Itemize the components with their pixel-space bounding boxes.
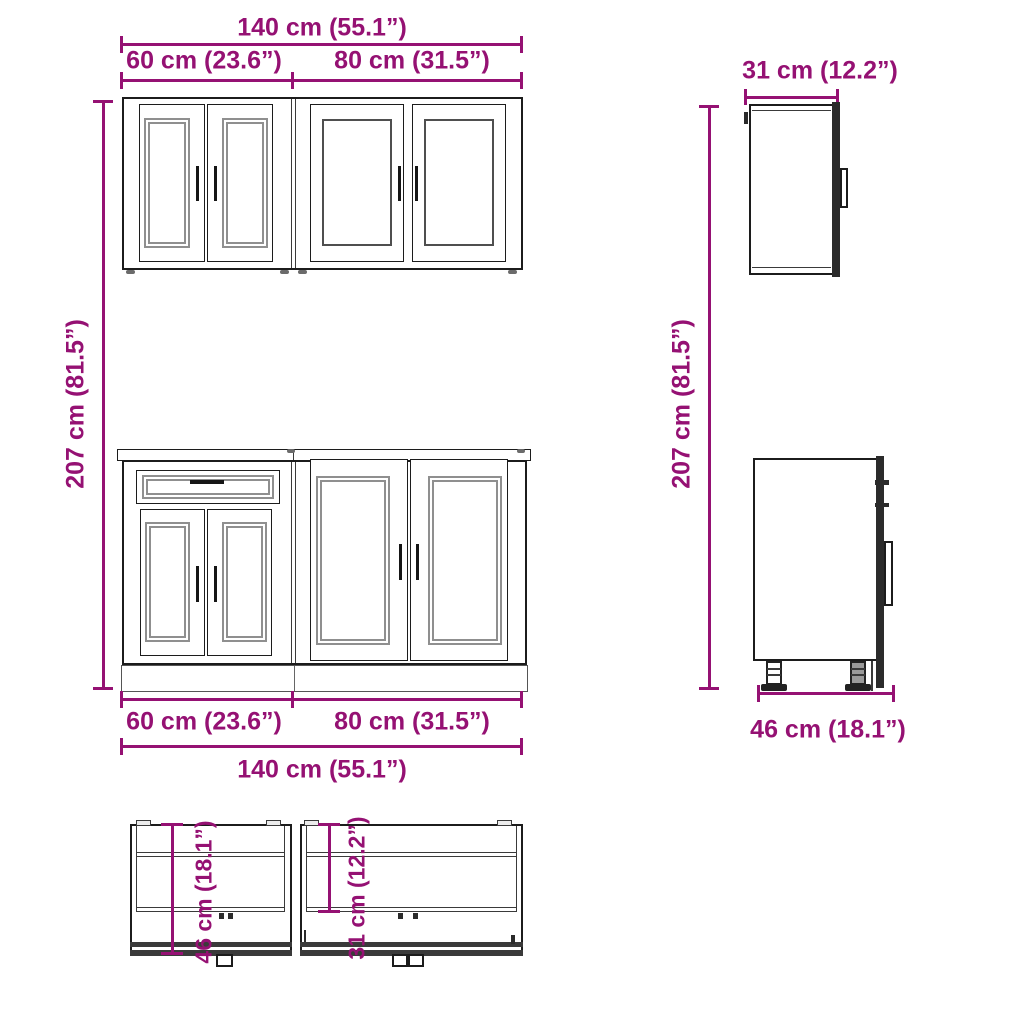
countertop-joint-mark xyxy=(517,449,525,453)
technical-drawing-canvas: 140 cm (55.1”) 60 cm (23.6”) 80 cm (31.5… xyxy=(0,0,1024,1024)
door-panel xyxy=(144,118,190,248)
dim-label-height-right: 207 cm (81.5”) xyxy=(670,319,695,489)
leg-ridge xyxy=(851,674,865,676)
dim-line-split-width-bottom xyxy=(122,698,523,701)
hinge-mark xyxy=(398,913,403,919)
door-edge-profile xyxy=(832,102,840,277)
dim-line-split-width-top xyxy=(122,79,523,82)
hinge-mark xyxy=(219,913,224,919)
side-line xyxy=(136,826,137,911)
dim-cap xyxy=(161,823,183,826)
drawer-joint-mark xyxy=(875,503,889,507)
dim-line-height-left xyxy=(102,101,105,690)
door-panel xyxy=(424,119,494,246)
foot-mark xyxy=(280,270,289,274)
corner-tab xyxy=(266,820,281,826)
cabinet-leg xyxy=(850,661,866,685)
foot-mark xyxy=(298,270,307,274)
dim-label-right-width-top: 80 cm (31.5”) xyxy=(334,49,490,74)
dim-cap xyxy=(520,738,523,755)
dim-cap xyxy=(291,691,294,708)
door-handle-icon xyxy=(415,166,418,201)
wall-cabinet-top-outline xyxy=(300,824,523,956)
dim-label-top-base-depth: 46 cm (18.1”) xyxy=(193,820,216,963)
leg-ridge xyxy=(851,668,865,670)
dim-line-base-depth xyxy=(758,692,895,695)
cabinet-seam-line xyxy=(291,99,292,268)
door-handle-icon xyxy=(840,168,848,208)
door-panel xyxy=(145,522,190,642)
door-handle-icon xyxy=(884,541,893,606)
dim-label-wall-depth: 31 cm (12.2”) xyxy=(742,59,898,84)
drawer-handle-icon xyxy=(190,480,224,484)
leg-ridge xyxy=(767,674,781,676)
cabinet-seam-line xyxy=(295,462,296,663)
dim-label-left-width-bottom: 60 cm (23.6”) xyxy=(126,710,282,735)
door-handle-icon xyxy=(399,544,402,580)
dim-cap xyxy=(520,36,523,53)
dim-cap xyxy=(120,738,123,755)
dim-line-wall-depth xyxy=(746,96,838,99)
leg-foot xyxy=(845,684,871,691)
door-handle-icon xyxy=(392,954,408,967)
door-panel xyxy=(316,476,390,645)
depth-line xyxy=(306,907,517,908)
door-handle-icon xyxy=(214,566,217,602)
corner-tab xyxy=(497,820,512,826)
door-handle-icon xyxy=(408,954,424,967)
dim-cap xyxy=(291,72,294,89)
door-handle-icon xyxy=(398,166,401,201)
dim-cap xyxy=(520,691,523,708)
dim-cap xyxy=(93,687,113,690)
dim-label-height-left: 207 cm (81.5”) xyxy=(64,319,89,489)
dim-cap xyxy=(120,36,123,53)
dim-label-total-width-bottom: 140 cm (55.1”) xyxy=(237,758,407,783)
dim-cap xyxy=(120,72,123,89)
counter-edge-mark xyxy=(875,480,889,485)
dim-line-top-base-depth xyxy=(171,825,174,955)
door-handle-icon xyxy=(196,166,199,201)
base-cabinet-side-outline xyxy=(753,458,878,661)
dim-cap xyxy=(520,72,523,89)
leg-foot xyxy=(761,684,787,691)
door-panel xyxy=(222,118,268,248)
dim-label-base-depth: 46 cm (18.1”) xyxy=(750,718,906,743)
hinge-mark xyxy=(413,913,418,919)
door-edge-profile xyxy=(876,456,884,688)
dim-cap xyxy=(161,952,183,955)
dim-label-top-wall-depth: 31 cm (12.2”) xyxy=(346,816,369,959)
front-edge-band xyxy=(300,942,523,947)
wall-cabinet-side-outline xyxy=(749,104,834,275)
dim-label-left-width-top: 60 cm (23.6”) xyxy=(126,49,282,74)
dim-cap xyxy=(892,685,895,702)
plinth xyxy=(121,665,528,692)
dim-cap xyxy=(318,910,340,913)
door-panel xyxy=(322,119,392,246)
door-handle-icon xyxy=(196,566,199,602)
cabinet-seam-line xyxy=(295,99,296,268)
cabinet-seam-line xyxy=(291,462,292,663)
door-handle-icon xyxy=(416,544,419,580)
side-line xyxy=(516,826,517,911)
side-line xyxy=(284,826,285,911)
door-handle-icon xyxy=(214,166,217,201)
edge-line xyxy=(752,267,831,268)
dim-cap xyxy=(699,687,719,690)
countertop-joint-mark xyxy=(287,449,295,453)
dim-label-total-width-top: 140 cm (55.1”) xyxy=(237,16,407,41)
edge-line xyxy=(752,110,831,111)
dim-line-total-width-bottom xyxy=(122,745,523,748)
depth-line xyxy=(306,856,517,857)
dim-label-right-width-bottom: 80 cm (31.5”) xyxy=(334,710,490,735)
edge-line xyxy=(871,661,873,691)
open-edge-mark xyxy=(511,935,515,944)
door-panel xyxy=(222,522,267,642)
cabinet-leg xyxy=(766,661,782,685)
hinge-mark xyxy=(228,913,233,919)
mount-bracket-mark xyxy=(744,112,748,124)
door-panel xyxy=(428,476,502,645)
leg-ridge xyxy=(767,668,781,670)
dim-cap xyxy=(744,89,747,105)
door-handle-icon xyxy=(216,954,233,967)
dim-line-top-wall-depth xyxy=(328,825,331,913)
dim-cap xyxy=(120,691,123,708)
dim-line-height-right xyxy=(708,106,711,690)
dim-cap xyxy=(93,100,113,103)
drawer-panel xyxy=(142,475,274,499)
dim-cap xyxy=(699,105,719,108)
corner-tab xyxy=(136,820,151,826)
depth-line xyxy=(306,852,517,853)
foot-mark xyxy=(508,270,517,274)
dim-cap xyxy=(757,685,760,702)
dim-cap xyxy=(318,823,340,826)
side-line xyxy=(306,826,307,911)
plinth-seam xyxy=(294,666,295,691)
foot-mark xyxy=(126,270,135,274)
